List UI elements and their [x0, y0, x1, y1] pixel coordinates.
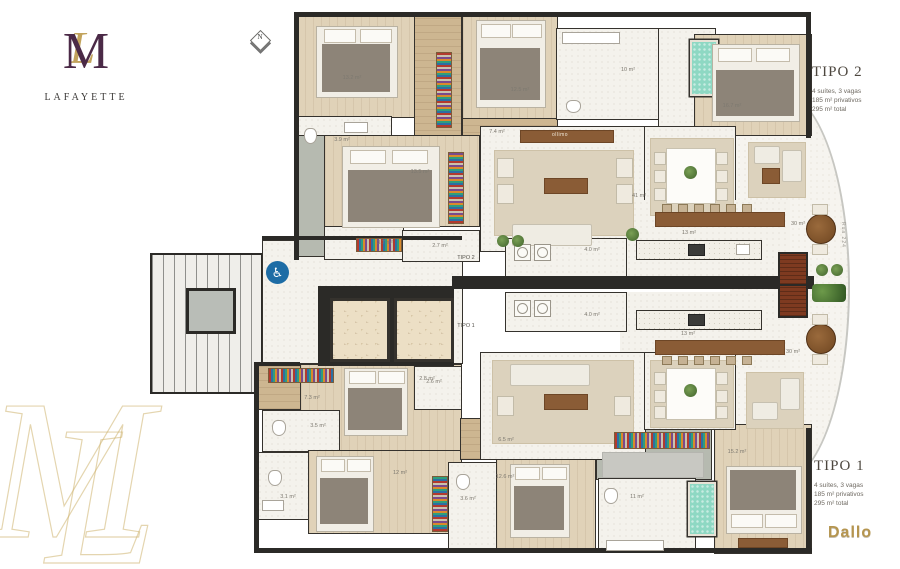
armchair — [614, 396, 631, 416]
stair-shaft — [186, 288, 236, 334]
street-label: Rua 224 — [840, 222, 846, 248]
bar-stool — [678, 356, 688, 365]
sofa-low — [510, 364, 590, 386]
floorplan-canvas: L M LAFAYETTE M L N ♿ — [0, 0, 900, 569]
blanket-suite3 — [348, 170, 432, 222]
bookshelf-suite-low2 — [432, 476, 448, 532]
lounge-table — [762, 168, 780, 184]
pillow — [349, 371, 376, 384]
plant-icon — [512, 235, 524, 247]
label-bath-low3: 3.6 m² — [460, 496, 476, 502]
label-suite2: 12.5 m² — [511, 87, 530, 93]
toilet — [604, 488, 618, 504]
bookshelf-closet1 — [436, 52, 452, 128]
toilet — [566, 100, 581, 113]
armchair — [616, 184, 633, 204]
bar-counter-top — [655, 212, 785, 227]
label-hall2: 7.4 m² — [489, 129, 505, 135]
dining-chair — [654, 372, 666, 385]
lounge-sofa — [782, 150, 802, 182]
label-suite1: 13.2 m² — [343, 75, 362, 81]
label-lav-top: 2.7 m² — [432, 243, 448, 249]
toilet — [304, 128, 317, 144]
label-suite-low1: 12 m² — [393, 470, 407, 476]
tipo1-title: TIPO 1 — [814, 458, 898, 475]
kitchen-sink — [736, 244, 750, 255]
tipo1-spec-panel: TIPO 1 4 suítes, 3 vagas 185 m² privativ… — [814, 458, 898, 508]
dining-chair — [654, 390, 666, 403]
stove-low — [688, 314, 705, 326]
round-table-top — [806, 214, 836, 244]
compass-n-label: N — [246, 33, 274, 41]
north-compass-icon: N — [246, 26, 274, 54]
label-tipo2-door: TIPO 2 — [457, 255, 474, 261]
dining-chair — [716, 152, 728, 165]
wall-step-lower — [254, 362, 300, 366]
round-table-low — [806, 324, 836, 354]
bar-stool — [710, 356, 720, 365]
label-suite-low2: 12.6 m² — [496, 474, 515, 480]
dining-chair — [654, 406, 666, 419]
patio-chair — [812, 204, 828, 215]
label-service-low: 4.0 m² — [584, 312, 600, 318]
pillow — [360, 29, 392, 43]
pillow — [512, 24, 542, 38]
label-living-top: 41 m² — [632, 193, 646, 199]
tipo2-spec-2: 185 m² privativos — [812, 96, 896, 105]
bookshelf-corridor-low — [268, 368, 334, 383]
label-balcony-top: 30 m² — [791, 221, 805, 227]
washer-icon — [514, 300, 531, 317]
centerpiece-plant-icon — [684, 166, 697, 179]
tipo2-title: TIPO 2 — [812, 64, 896, 81]
dining-chair — [716, 406, 728, 419]
blanket — [514, 486, 564, 530]
lafayette-logo: L M LAFAYETTE — [18, 22, 154, 103]
patio-chair — [812, 244, 828, 255]
plant-icon — [831, 264, 843, 276]
pillow — [756, 48, 790, 62]
wall-left-lower — [254, 362, 259, 553]
tipo2-spec-3: 295 m² total — [812, 105, 896, 114]
pillow — [350, 150, 386, 164]
bar-counter-low — [655, 340, 785, 355]
toilet — [456, 474, 470, 490]
lounge-chair — [752, 402, 778, 420]
lafayette-monogram-icon: L M — [18, 22, 154, 88]
toilet — [272, 420, 286, 436]
dryer-icon — [534, 300, 551, 317]
pillow — [481, 24, 511, 38]
label-bath3: 3.7 m² — [377, 240, 393, 246]
sink — [344, 122, 368, 133]
armchair — [497, 396, 514, 416]
dining-chair — [716, 188, 728, 201]
label-bath-top: 10 m² — [621, 67, 635, 73]
bar-stool — [662, 356, 672, 365]
label-tipo1-door: TIPO 1 — [457, 323, 474, 329]
bookshelf-suite3 — [448, 152, 464, 224]
armchair — [616, 158, 633, 178]
watermark-l: L — [46, 382, 157, 569]
patio-chair — [812, 354, 828, 365]
label-master-low: 15.2 m² — [728, 449, 747, 455]
tv-brand-label: ollimo — [552, 132, 568, 138]
label-kitchen-low: 13 m² — [681, 331, 695, 337]
dining-chair — [716, 390, 728, 403]
bar-stool — [742, 356, 752, 365]
stove-top — [688, 244, 705, 256]
room-bath-low3 — [448, 462, 498, 550]
label-corridor-low: 7.3 m² — [304, 395, 320, 401]
wall-top — [294, 12, 811, 17]
blanket-suite1 — [322, 44, 390, 92]
dining-chair — [654, 170, 666, 183]
spa-tub-low — [688, 482, 716, 536]
pillow — [324, 29, 356, 43]
label-bath-low1: 3.5 m² — [310, 423, 326, 429]
label-bath-master-low: 11 m² — [630, 494, 644, 500]
tipo2-spec-1: 4 suítes, 3 vagas — [812, 87, 896, 96]
blanket — [320, 478, 368, 524]
label-master-top: 16.7 m² — [723, 103, 742, 109]
tipo1-spec-3: 295 m² total — [814, 499, 898, 508]
pillow — [731, 514, 763, 528]
coffee-table-low — [544, 394, 588, 410]
bbq-grill-bottom — [778, 284, 808, 318]
bed-bench-low — [738, 538, 788, 548]
tipo2-spec-panel: TIPO 2 4 suítes, 3 vagas 185 m² privativ… — [812, 64, 896, 114]
dallo-logo: Dallo — [828, 524, 872, 542]
watermark-m: M — [0, 356, 153, 569]
pillow — [392, 150, 428, 164]
label-kitchen-top: 13 m² — [682, 230, 696, 236]
pillow — [347, 459, 371, 472]
label-corridor-low2: 6.5 m² — [498, 437, 514, 443]
dining-chair — [654, 152, 666, 165]
room-storage-low — [414, 366, 462, 410]
label-bath-low2: 3.1 m² — [280, 494, 296, 500]
pillow — [765, 514, 797, 528]
blanket — [730, 470, 796, 510]
label-service-top: 4.0 m² — [584, 247, 600, 253]
lounge-chair — [754, 146, 780, 164]
label-balcony-low: 30 m² — [786, 349, 800, 355]
armchair — [497, 158, 514, 178]
centerpiece-plant-icon — [684, 384, 697, 397]
label-bath1: 3.9 m² — [334, 137, 350, 143]
bbq-grill-top — [778, 252, 808, 286]
blanket-master-top — [716, 70, 794, 116]
closet-rug-low — [602, 452, 704, 478]
brand-name: LAFAYETTE — [18, 92, 154, 103]
plant-icon — [497, 235, 509, 247]
wall-left-upper — [294, 12, 299, 260]
hedge-plant — [812, 284, 846, 302]
patio-chair — [812, 314, 828, 325]
elevator-cab-1 — [330, 298, 390, 362]
label-storage-low: 2.6 m² — [426, 379, 442, 385]
pillow — [542, 467, 567, 480]
wall-right-lower — [806, 428, 811, 553]
pillow — [515, 467, 540, 480]
wall-right-upper — [806, 12, 811, 138]
double-sink — [562, 32, 620, 44]
plant-icon — [816, 264, 828, 276]
label-suite3: 13.5 m² — [411, 169, 430, 175]
pillow — [321, 459, 345, 472]
toilet — [268, 470, 282, 486]
tipo1-spec-2: 185 m² privativos — [814, 490, 898, 499]
accessibility-icon: ♿ — [266, 261, 289, 284]
dryer-icon — [534, 244, 551, 261]
pillow — [718, 48, 752, 62]
lounge-sofa — [780, 378, 800, 410]
unit-divider-wall — [452, 276, 814, 289]
bookshelf-closet-low — [614, 432, 710, 449]
sink — [262, 500, 284, 511]
dining-chair — [716, 170, 728, 183]
bar-stool — [726, 356, 736, 365]
armchair — [497, 184, 514, 204]
dining-chair — [716, 372, 728, 385]
tipo1-spec-1: 4 suítes, 3 vagas — [814, 481, 898, 490]
elevator-cab-2 — [394, 298, 454, 362]
sofa-top — [512, 224, 592, 246]
dining-chair — [654, 188, 666, 201]
bar-stool — [694, 356, 704, 365]
blanket — [348, 388, 402, 430]
pillow — [378, 371, 405, 384]
monogram-m: M — [63, 22, 109, 82]
coffee-table-top — [544, 178, 588, 194]
double-sink — [606, 540, 664, 551]
wall-bottom — [254, 548, 812, 553]
